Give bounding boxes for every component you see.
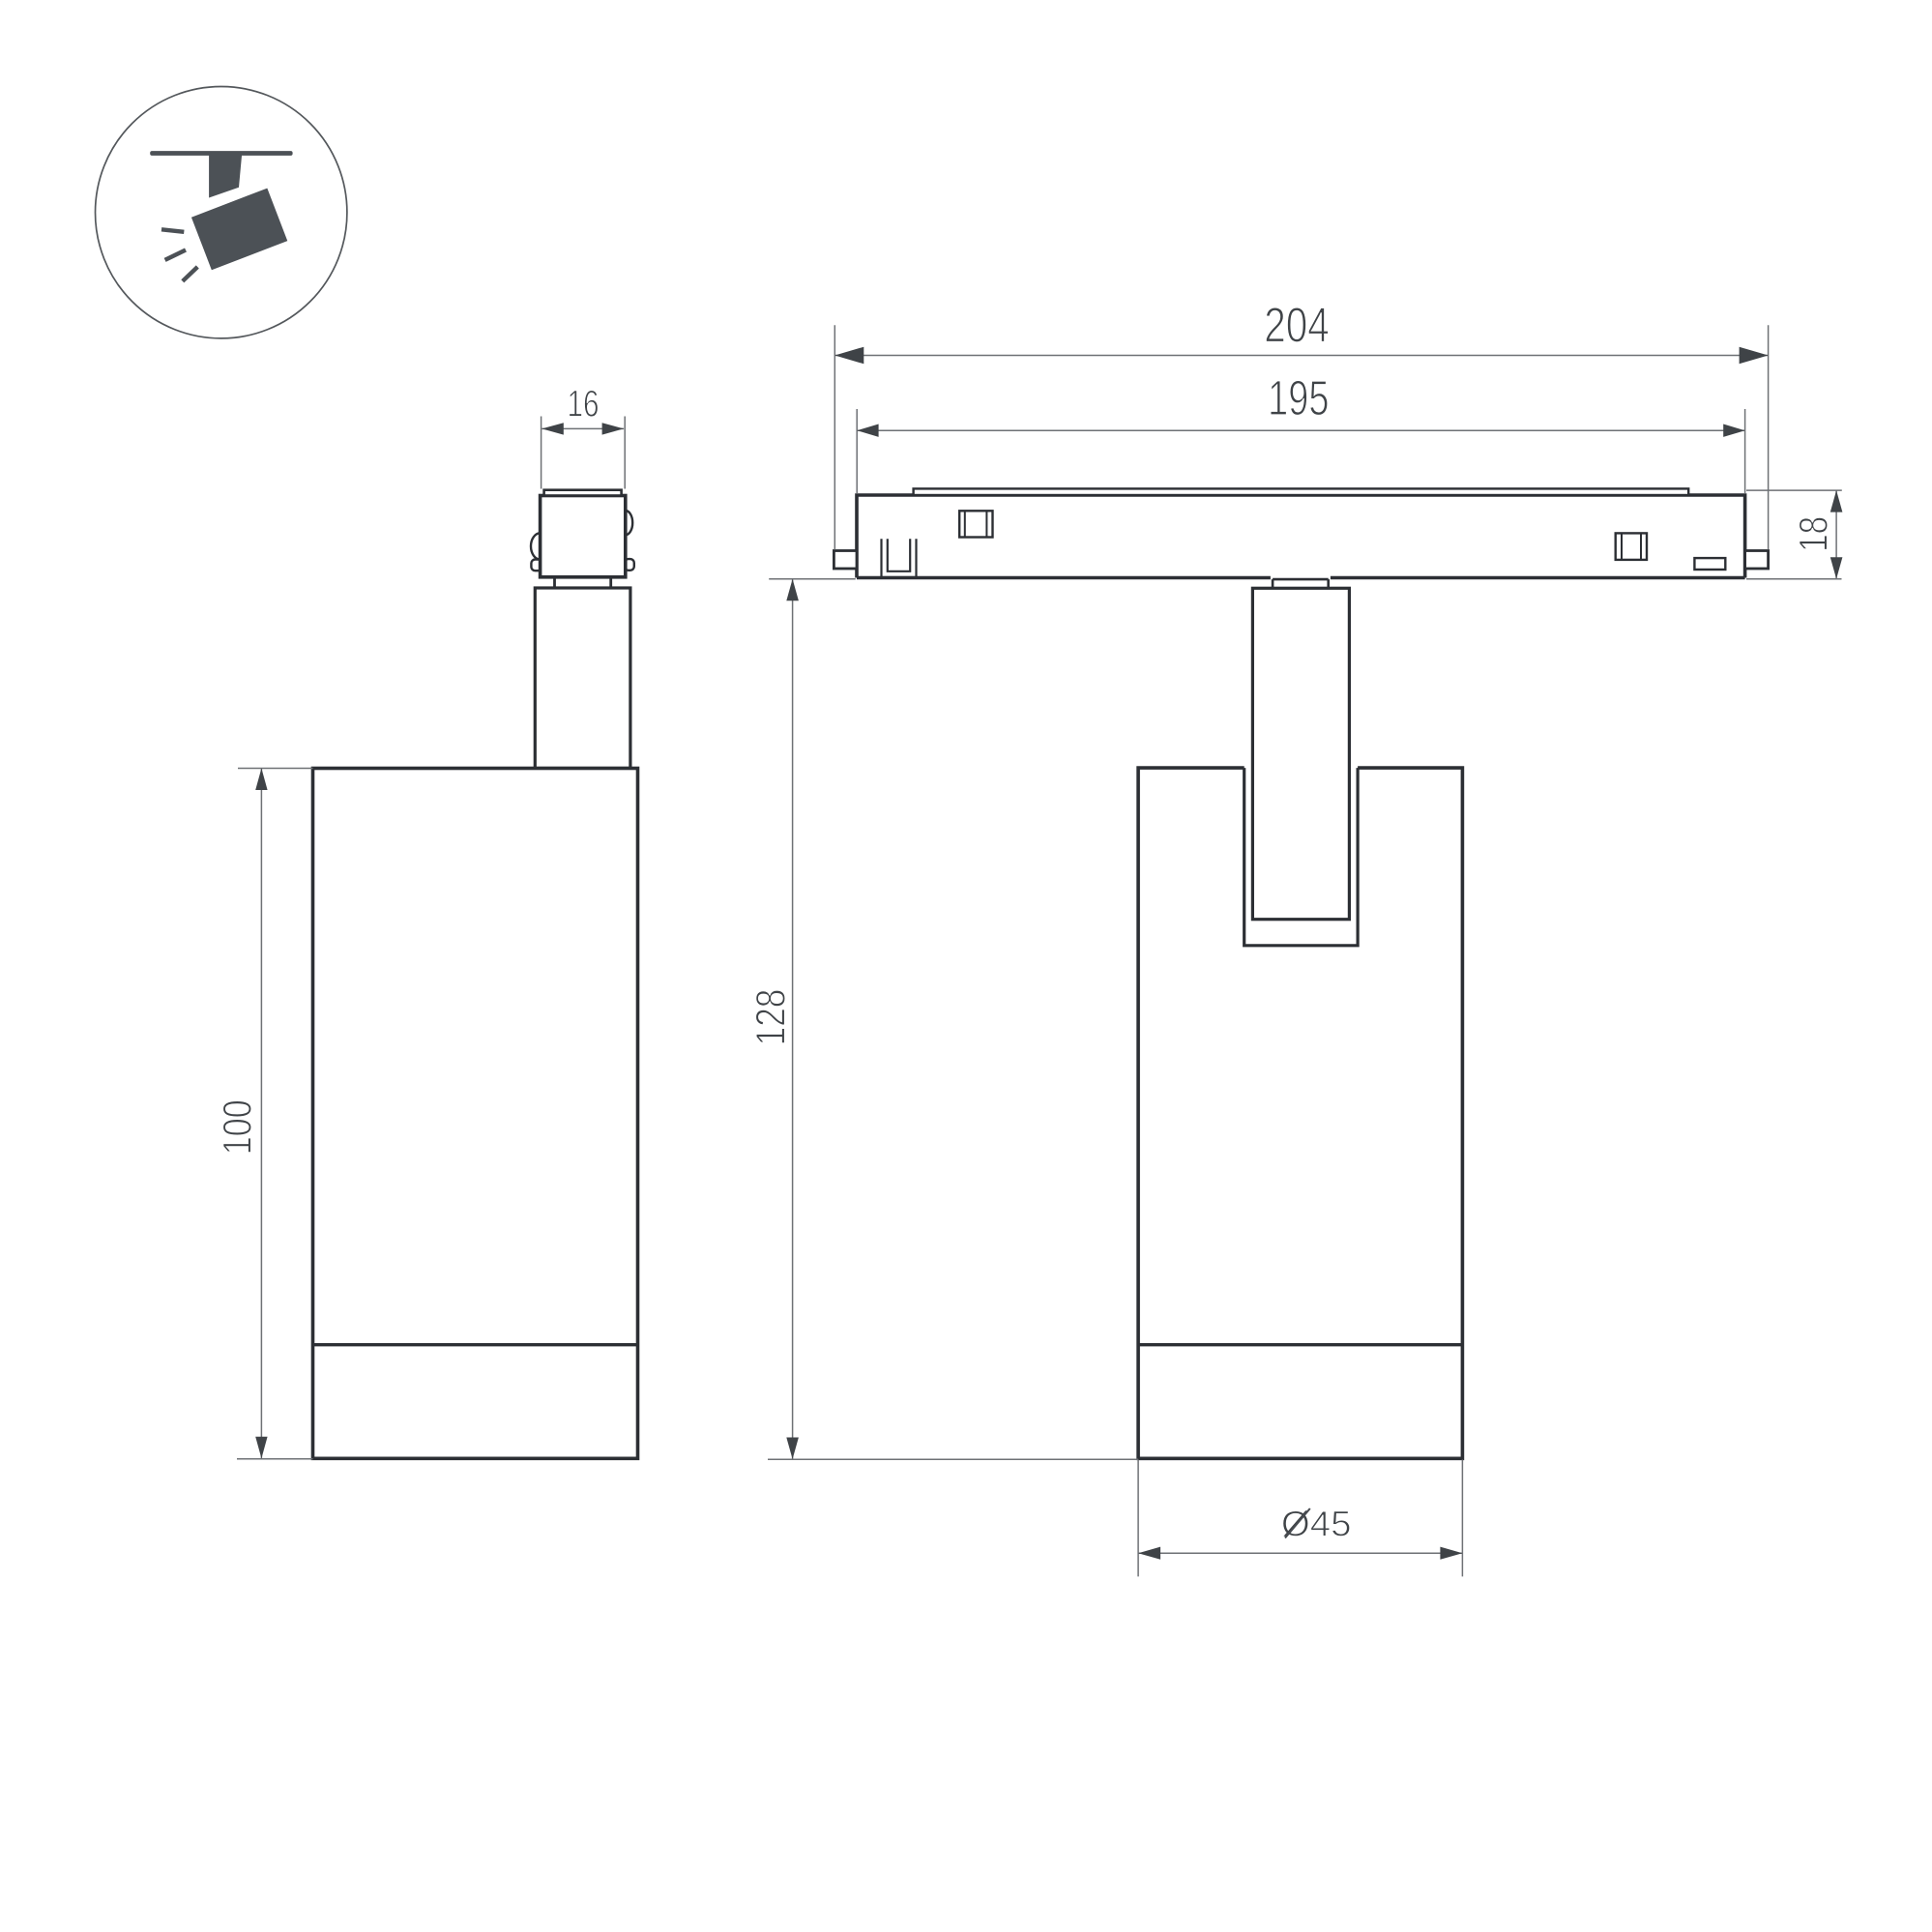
svg-text:100: 100: [215, 1099, 260, 1155]
svg-text:128: 128: [748, 989, 795, 1046]
svg-text:Ø45: Ø45: [1281, 1505, 1352, 1544]
svg-text:204: 204: [1264, 297, 1330, 352]
svg-text:195: 195: [1268, 370, 1329, 425]
svg-text:18: 18: [1790, 516, 1835, 552]
svg-text:16: 16: [568, 384, 600, 425]
